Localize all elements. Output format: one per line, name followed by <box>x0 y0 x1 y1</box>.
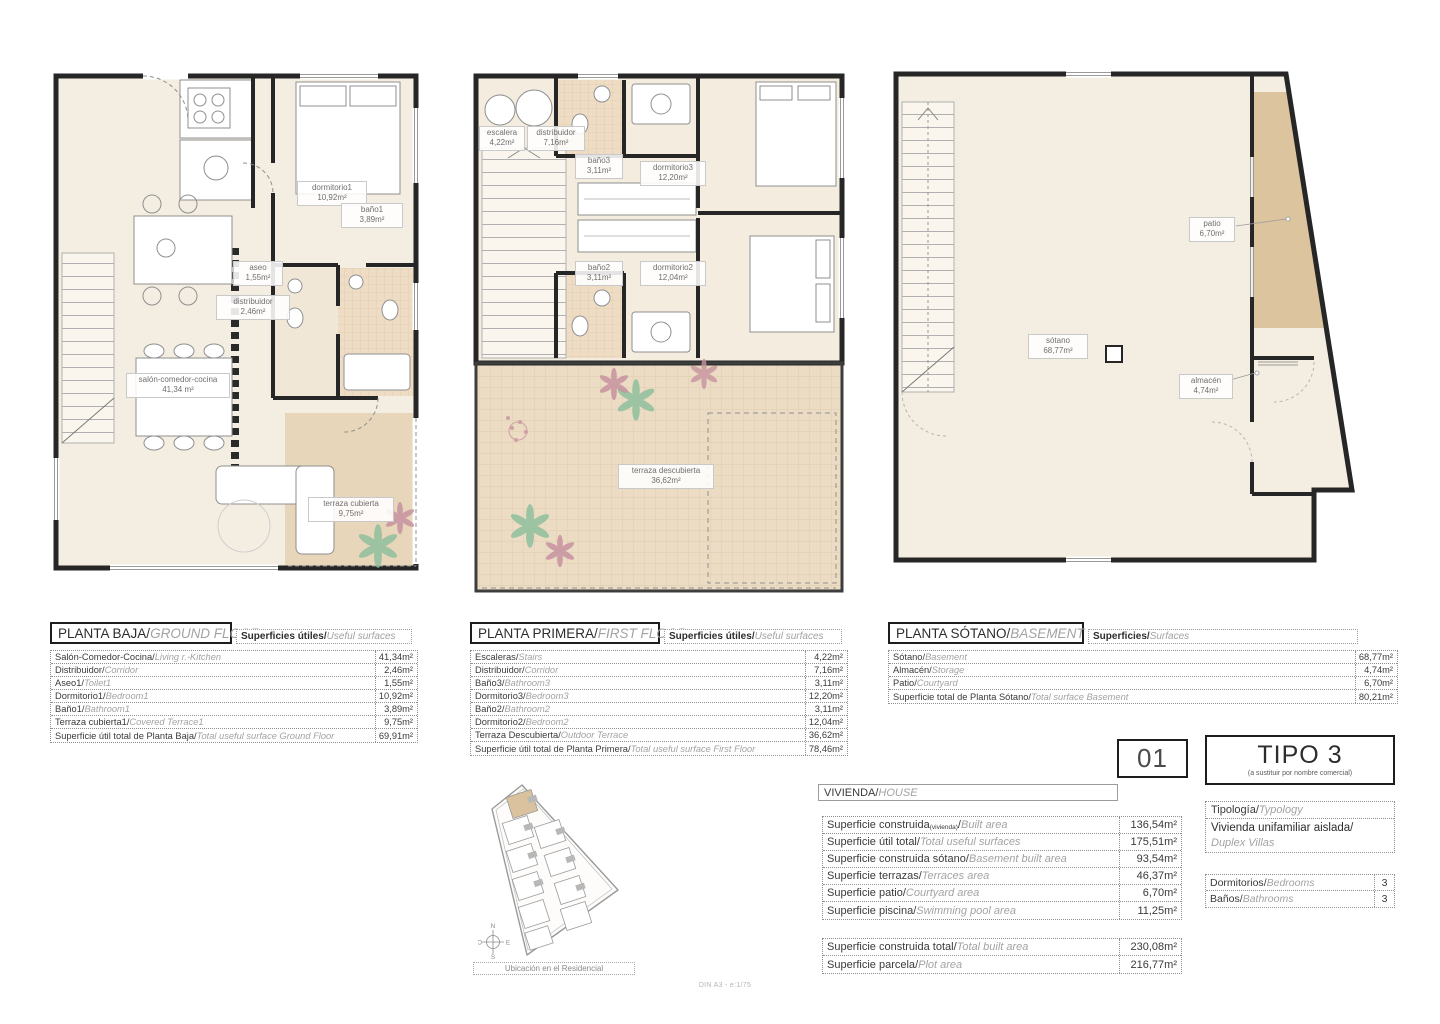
vivienda-table: Superficie construida(vivienda)Built are… <box>822 816 1182 920</box>
room-label-bano1: baño1 3,89m² <box>341 203 403 228</box>
room-label-bano2: baño2 3,11m² <box>575 261 623 286</box>
table-row: Superficie construida sótanoBasement bui… <box>823 851 1181 868</box>
table-row: Superficie patioCourtyard area 6,70m² <box>823 885 1181 902</box>
vivienda-header: VIVIENDAHOUSE <box>818 784 1118 801</box>
location-map: N E S O <box>478 782 628 960</box>
table-row: Superficie parcelaPlot area 216,77m² <box>823 956 1181 973</box>
first-floor-title: PLANTA PRIMERAFIRST FLOOR <box>470 622 660 644</box>
room-label-sotano: sótano 68,77m² <box>1028 334 1088 359</box>
room-label-almacen: almacén 4,74m² <box>1179 374 1233 399</box>
table-row: Baño3Bathroom3 3,11m² <box>471 677 847 690</box>
compass-icon <box>482 930 504 954</box>
table-row: DormitoriosBedrooms 3 <box>1206 875 1394 891</box>
table-row: Aseo1Toilet1 1,55m² <box>51 677 417 690</box>
tipo-box: TIPO 3 (a sustituir por nombre comercial… <box>1205 735 1395 785</box>
basement-table: SótanoBasement 68,77m² AlmacénStorage 4,… <box>888 650 1398 704</box>
first-floor-table: EscalerasStairs 4,22m² DistribuidorCorri… <box>470 650 848 756</box>
table-row: Superficie útil total de Planta PrimeraT… <box>471 742 847 755</box>
typology-box: TipologíaTypology Vivienda unifamiliar a… <box>1205 801 1395 853</box>
room-label-dormitorio2: dormitorio2 12,04m² <box>640 261 706 286</box>
room-label-aseo: aseo 1,55m² <box>233 261 283 286</box>
table-row: Superficie útil totalTotal useful surfac… <box>823 834 1181 851</box>
first-floor-surfaces-header: Superficies útilesUseful surfaces <box>664 629 842 644</box>
table-row: Superficie terrazasTerraces area 46,37m² <box>823 868 1181 885</box>
first-floor-plan <box>468 68 850 600</box>
table-row: EscalerasStairs 4,22m² <box>471 651 847 664</box>
table-row: Terraza cubierta1Covered Terrace1 9,75m² <box>51 716 417 729</box>
counts-table: DormitoriosBedrooms 3 BañosBathrooms 3 <box>1205 874 1395 908</box>
unit-number-box: 01 <box>1117 739 1188 778</box>
ground-floor-surfaces-header: Superficies útilesUseful surfaces <box>236 629 412 644</box>
room-label-bano3: baño3 3,11m² <box>575 154 623 179</box>
ground-floor-table: Salón-Comedor-CocinaLiving r.-Kitchen 41… <box>50 650 418 743</box>
basement-surfaces-header: SuperficiesSurfaces <box>1088 629 1358 644</box>
room-label-distribuidor-p1: distribuidor 7,16m² <box>527 126 585 151</box>
table-row: Superficie construida(vivienda)Built are… <box>823 817 1181 834</box>
typology-value: Vivienda unifamiliar aislada Duplex Vill… <box>1206 819 1394 852</box>
table-row: DistribuidorCorridor 7,16m² <box>471 664 847 677</box>
location-caption: Ubicación en el Residencial <box>473 962 635 975</box>
table-row: DistribuidorCorridor 2,46m² <box>51 664 417 677</box>
table-row: Baño1Bathroom1 3,89m² <box>51 703 417 716</box>
table-row: Dormitorio2Bedroom2 12,04m² <box>471 716 847 729</box>
table-row: Terraza DescubiertaOutdoor Terrace 36,62… <box>471 729 847 742</box>
ground-floor-plan <box>48 68 432 614</box>
table-row: AlmacénStorage 4,74m² <box>889 664 1397 677</box>
floor-plan-sheet: dormitorio1 10,92m² baño1 3,89m² aseo 1,… <box>0 0 1440 1024</box>
table-row: PatioCourtyard 6,70m² <box>889 677 1397 690</box>
table-row: Baño2Bathroom2 3,11m² <box>471 703 847 716</box>
svg-text:S: S <box>491 954 496 960</box>
scale-note: DIN A3 - e:1/75 <box>660 982 790 989</box>
table-row: Superficie útil total de Planta BajaTota… <box>51 729 417 742</box>
svg-text:N: N <box>491 923 496 930</box>
table-row: Superficie total de Planta SótanoTotal s… <box>889 690 1397 703</box>
room-label-escalera: escalera 4,22m² <box>479 126 525 151</box>
table-row: Dormitorio1Bedroom1 10,92m² <box>51 690 417 703</box>
room-label-patio: patio 6,70m² <box>1189 217 1235 242</box>
room-label-terraza-descubierta: terraza descubierta 36,62m² <box>618 464 714 489</box>
svg-text:O: O <box>478 940 482 947</box>
table-row: Salón-Comedor-CocinaLiving r.-Kitchen 41… <box>51 651 417 664</box>
basement-plan <box>886 62 1400 582</box>
table-row: Superficie construida totalTotal built a… <box>823 939 1181 956</box>
typology-header: TipologíaTypology <box>1206 802 1394 819</box>
basement-title: PLANTA SÓTANOBASEMENT <box>888 622 1084 644</box>
room-label-distribuidor-pb: distribuidor 2,46m² <box>216 295 290 320</box>
room-label-dormitorio3: dormitorio3 12,20m² <box>640 161 706 186</box>
totals-table: Superficie construida totalTotal built a… <box>822 938 1182 974</box>
ground-floor-title: PLANTA BAJAGROUND FLOOR <box>50 622 232 644</box>
table-row: SótanoBasement 68,77m² <box>889 651 1397 664</box>
table-row: Dormitorio3Bedroom3 12,20m² <box>471 690 847 703</box>
room-label-salon: salón-comedor-cocina 41,34 m² <box>126 373 230 398</box>
room-label-terraza-cubierta: terraza cubierta 9,75m² <box>308 497 394 522</box>
svg-text:E: E <box>506 940 511 947</box>
table-row: Superficie piscinaSwimming pool area 11,… <box>823 902 1181 919</box>
table-row: BañosBathrooms 3 <box>1206 891 1394 907</box>
